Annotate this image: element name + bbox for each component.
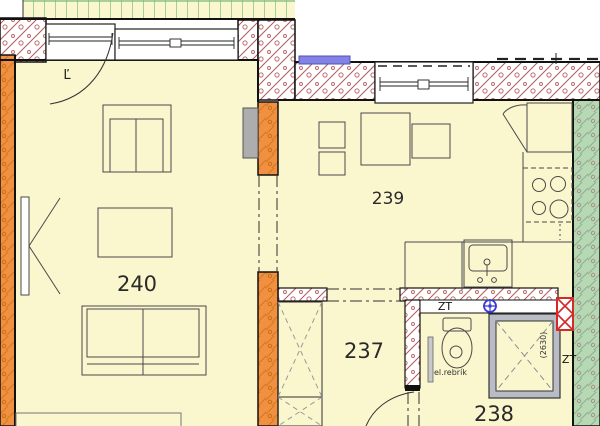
opening-240-239 [258, 175, 278, 272]
blue-lintel-marker [299, 56, 350, 64]
room-239-label: 239 [372, 189, 404, 209]
room-238-label: 238 [474, 402, 514, 426]
floor-plan: 240 239 237 238 Ľ ZT ZT el.rebrík (2630) [0, 0, 600, 426]
terrace-paving [23, 0, 295, 20]
room-239-floor [278, 100, 573, 290]
radiator [243, 108, 258, 158]
room-240-label: 240 [117, 272, 157, 296]
wall-237-239-left [278, 288, 327, 301]
wall-wc-endcap [405, 385, 420, 391]
window-239 [375, 62, 473, 103]
electric-ladder-riser [428, 337, 433, 382]
wall-pier-mid [238, 20, 258, 60]
electric-ladder-label: el.rebrík [434, 368, 467, 377]
zt-wc-label: ZT [438, 300, 453, 313]
wall-stub-240-239 [258, 102, 278, 175]
window-240 [115, 29, 238, 60]
floor-plan-drawing: 240 239 237 238 Ľ ZT ZT el.rebrík (2630) [0, 0, 600, 426]
shaft-dimension-label: (2630) [539, 332, 548, 359]
wall-top-239-left [295, 62, 375, 100]
ventilation-shaft-marker [557, 298, 573, 330]
balcony-door-label: Ľ [63, 68, 71, 83]
wall-240-237 [258, 272, 278, 426]
wall-right-neighbor [573, 100, 600, 426]
room-237-label: 237 [344, 339, 384, 363]
zt-shaft-label: ZT [562, 353, 577, 366]
room-240-floor [15, 58, 258, 426]
wall-wc-left [405, 300, 420, 388]
wall-left-exterior [0, 55, 15, 426]
wall-corner-239 [258, 20, 295, 100]
wall-237-239-right [400, 288, 558, 301]
wall-top-239-right [473, 62, 600, 100]
installation-shaft [489, 314, 560, 398]
